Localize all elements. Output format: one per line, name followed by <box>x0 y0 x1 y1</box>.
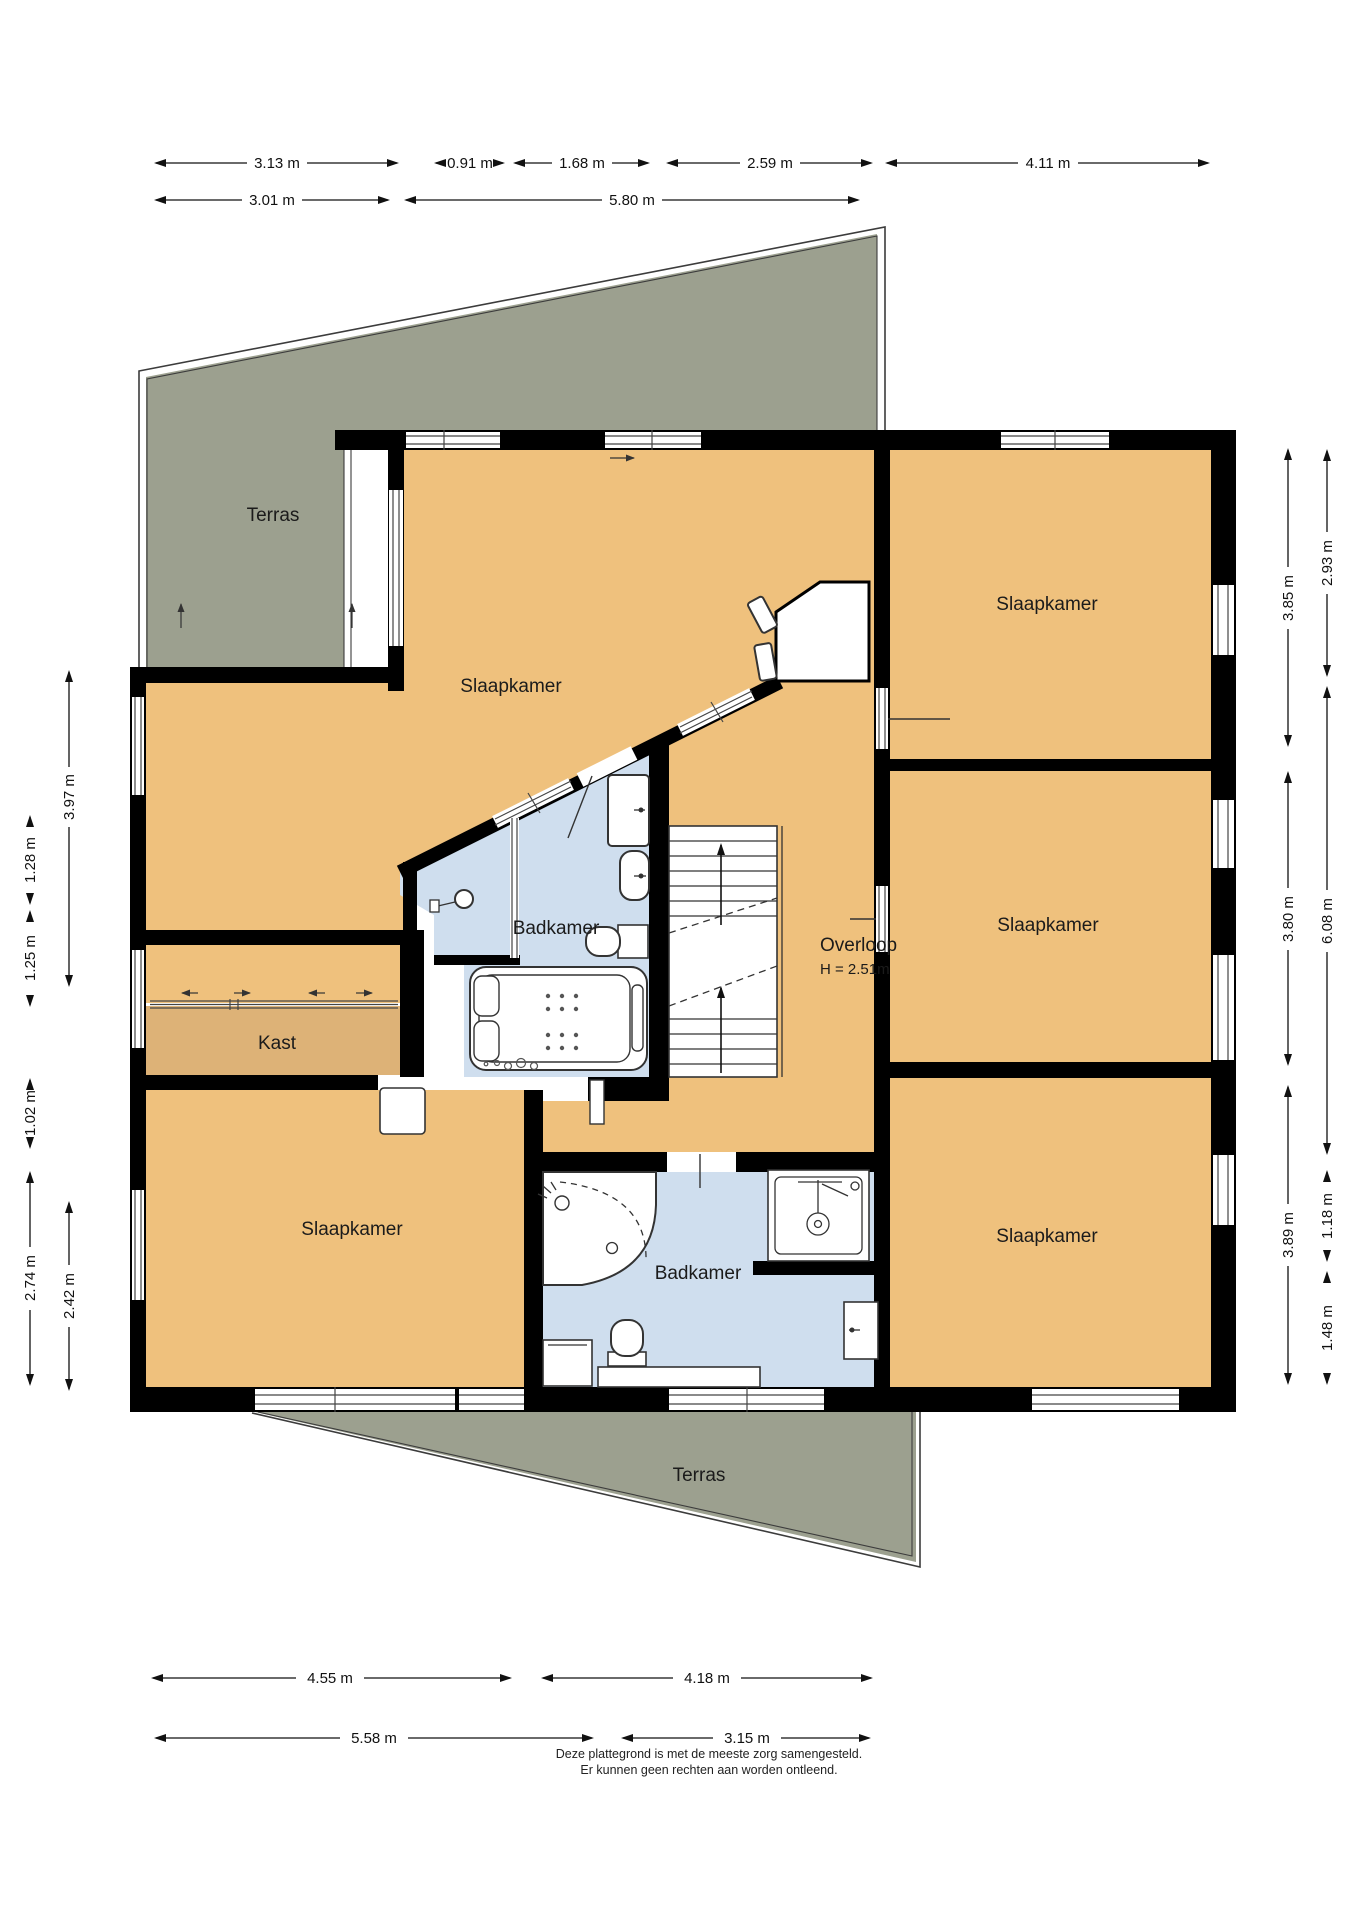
washbasin-cabinet <box>608 775 649 846</box>
tub-headrest-1 <box>474 976 499 1016</box>
bedroom-midright-label: Slaapkamer <box>997 915 1099 936</box>
svg-text:3.15 m: 3.15 m <box>724 1730 770 1747</box>
svg-text:1.18 m: 1.18 m <box>1319 1193 1336 1239</box>
sliding-door-track <box>150 999 398 1010</box>
terrace-bottom: Terras <box>252 1412 920 1567</box>
dim-top-6: 3.01 m <box>156 192 388 209</box>
stairs-body <box>669 826 777 1077</box>
wall-bottomleft-bedroom-right <box>524 1090 543 1389</box>
bathroom-cabinet <box>543 1340 592 1386</box>
tub-headrest-2 <box>474 1021 499 1061</box>
footer-line2: Er kunnen geen rechten aan worden ontlee… <box>580 1763 837 1777</box>
svg-text:5.58 m: 5.58 m <box>351 1730 397 1747</box>
svg-text:5.80 m: 5.80 m <box>609 192 655 209</box>
bedroom-topleft-label: Slaapkamer <box>460 676 562 697</box>
dim-bottom-3: 5.58 m <box>156 1730 592 1747</box>
svg-text:3.80 m: 3.80 m <box>1280 896 1297 942</box>
wall-shower-stub <box>753 1261 878 1275</box>
tub-grab-bar <box>632 985 643 1051</box>
dim-left-6: 2.42 m <box>61 1203 78 1389</box>
dim-top-7: 5.80 m <box>406 192 858 209</box>
wall-right-rooms-divider1 <box>874 759 1236 771</box>
svg-text:1.68 m: 1.68 m <box>559 155 605 172</box>
window-right-1 <box>1213 585 1234 655</box>
wall-landing-right <box>874 771 890 1387</box>
bedroom-bottomright-label: Slaapkamer <box>996 1226 1098 1247</box>
window-left-3 <box>132 1190 144 1300</box>
dim-top-5: 4.11 m <box>887 155 1208 172</box>
svg-text:2.59 m: 2.59 m <box>747 155 793 172</box>
window-right-3 <box>1213 955 1234 1060</box>
svg-text:2.74 m: 2.74 m <box>22 1255 39 1301</box>
window-top-2 <box>605 430 701 450</box>
wall-right-rooms-divider2 <box>874 1062 1236 1078</box>
terrace-top-label: Terras <box>247 505 300 526</box>
bathroom-bench <box>598 1367 760 1387</box>
wall-bathroom-bottom-top-a <box>530 1152 667 1172</box>
wall-closet-top <box>130 930 424 945</box>
window-right-2 <box>1213 800 1234 868</box>
footer-disclaimer: Deze plattegrond is met de meeste zorg s… <box>556 1747 862 1777</box>
svg-text:3.85 m: 3.85 m <box>1280 575 1297 621</box>
floor-plan-svg: Terras Terras <box>0 0 1358 1920</box>
dim-bottom-4: 3.15 m <box>623 1730 869 1747</box>
window-left-1 <box>132 697 144 795</box>
wall-right <box>1211 430 1236 1412</box>
svg-text:1.25 m: 1.25 m <box>22 935 39 981</box>
bedroom-topright-label: Slaapkamer <box>996 594 1098 615</box>
window-bottom-1 <box>255 1387 455 1412</box>
svg-text:4.11 m: 4.11 m <box>1026 155 1071 172</box>
stairs <box>669 826 782 1077</box>
terrace-bottom-floor <box>255 1412 916 1562</box>
dim-top-3: 1.68 m <box>515 155 648 172</box>
svg-text:1.02 m: 1.02 m <box>22 1090 39 1136</box>
wall-bathroom-bottom-top-b <box>736 1152 878 1172</box>
wall-terrace-lobe-bottom <box>130 667 404 683</box>
wall-stairs-left <box>649 745 669 1101</box>
svg-text:4.18 m: 4.18 m <box>684 1670 730 1687</box>
dim-left-2: 1.28 m <box>22 817 39 903</box>
bedroom-bottomleft-label: Slaapkamer <box>301 1219 403 1240</box>
svg-text:3.89 m: 3.89 m <box>1280 1212 1297 1258</box>
dim-right-6: 3.89 m <box>1280 1087 1297 1383</box>
closet-label: Kast <box>258 1033 297 1054</box>
dim-right-4: 3.80 m <box>1280 773 1297 1064</box>
floorplan-page: Terras Terras <box>0 0 1358 1920</box>
sink-icon <box>620 851 649 900</box>
svg-text:3.13 m: 3.13 m <box>254 155 300 172</box>
shower-tray <box>768 1170 869 1261</box>
dim-bottom-2: 4.18 m <box>543 1670 871 1687</box>
dim-top-2: 0.91 m <box>436 155 503 172</box>
landing-label: Overloop <box>820 935 897 956</box>
landing-height-label: H = 2.51m <box>820 961 890 978</box>
dim-right-2: 3.85 m <box>1280 450 1297 745</box>
wall-closet-bottom <box>130 1075 378 1090</box>
svg-text:4.55 m: 4.55 m <box>307 1670 353 1687</box>
svg-text:1.28 m: 1.28 m <box>22 837 39 883</box>
footer-line1: Deze plattegrond is met de meeste zorg s… <box>556 1747 862 1761</box>
dim-left-4: 1.02 m <box>22 1080 39 1147</box>
dim-right-1: 2.93 m <box>1319 451 1336 675</box>
dim-left-5: 2.74 m <box>22 1173 39 1384</box>
bathroom-bottom-label: Badkamer <box>655 1263 742 1284</box>
window-bottom-4 <box>1032 1389 1179 1410</box>
window-top-3 <box>1001 430 1109 450</box>
door-bottomleft-bedroom <box>378 1077 425 1134</box>
svg-text:1.48 m: 1.48 m <box>1319 1305 1336 1351</box>
terrace-lobe-railing <box>344 430 351 667</box>
svg-text:3.01 m: 3.01 m <box>249 192 295 209</box>
window-left-2 <box>132 950 144 1048</box>
jacuzzi-bathtub <box>470 967 647 1070</box>
svg-text:0.91 m: 0.91 m <box>447 155 493 172</box>
wall-closet-right <box>400 930 424 1090</box>
svg-text:3.97 m: 3.97 m <box>61 774 78 820</box>
dim-top-4: 2.59 m <box>668 155 871 172</box>
toilet-bottom-icon <box>608 1320 646 1366</box>
dim-bottom-1: 4.55 m <box>153 1670 510 1687</box>
svg-text:2.93 m: 2.93 m <box>1319 540 1336 586</box>
window-right-4 <box>1213 1155 1234 1225</box>
terrace-bottom-label: Terras <box>673 1465 726 1486</box>
bathroom-center-label: Badkamer <box>513 918 600 939</box>
svg-text:2.42 m: 2.42 m <box>61 1273 78 1319</box>
dim-right-7: 1.48 m <box>1319 1273 1336 1383</box>
svg-text:6.08 m: 6.08 m <box>1319 898 1336 944</box>
dim-left-3: 1.25 m <box>22 912 39 1005</box>
terrace-door-window <box>389 490 403 646</box>
window-top-1 <box>406 430 500 450</box>
dim-right-5: 1.18 m <box>1319 1172 1336 1260</box>
window-bottom-2 <box>459 1389 524 1410</box>
wall-tub-stub <box>434 955 520 965</box>
dim-right-3: 6.08 m <box>1319 688 1336 1153</box>
dim-left-1: 3.97 m <box>61 672 78 985</box>
dim-top-1: 3.13 m <box>156 155 397 172</box>
wall-sink-icon <box>844 1302 878 1359</box>
closet-front-floor <box>146 945 400 1003</box>
window-bottom-3 <box>669 1387 824 1412</box>
